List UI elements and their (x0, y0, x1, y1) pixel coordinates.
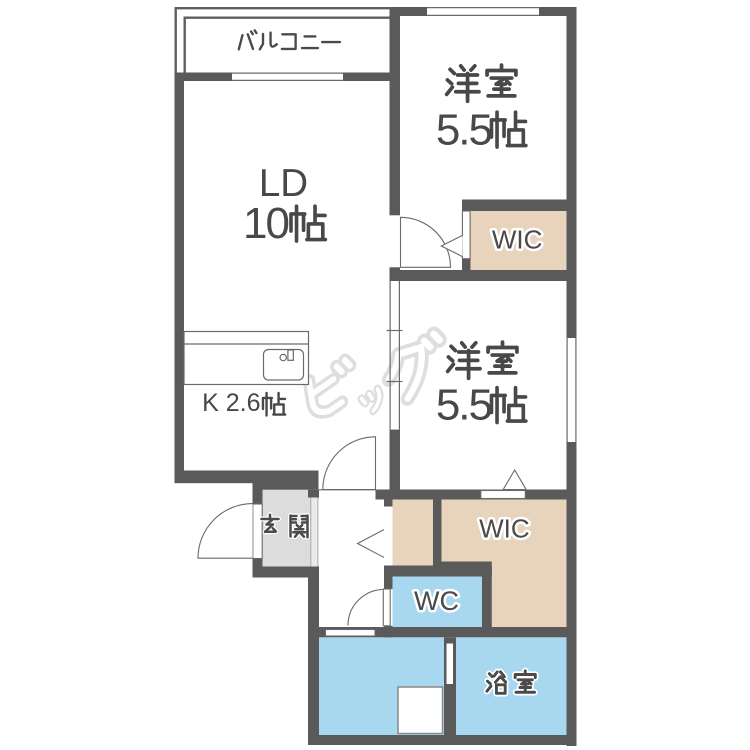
svg-text:K 2.6: K 2.6 (202, 389, 260, 417)
svg-text:WIC: WIC (479, 514, 530, 544)
svg-text:10: 10 (243, 199, 288, 248)
svg-text:5.5: 5.5 (436, 106, 492, 155)
svg-text:WC: WC (414, 586, 459, 616)
svg-text:WIC: WIC (492, 225, 543, 255)
svg-text:5.5: 5.5 (436, 381, 492, 430)
